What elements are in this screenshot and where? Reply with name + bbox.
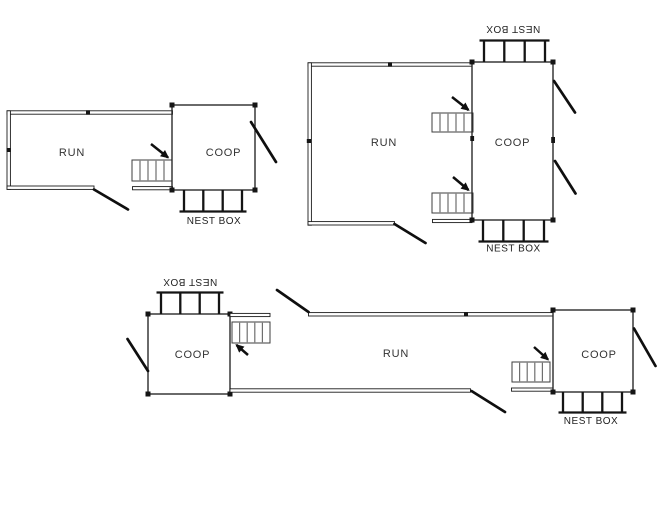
run-fence-bottom-left xyxy=(7,186,94,189)
plan-2-pop-door-arrow-lower xyxy=(453,177,469,190)
run-fence-bottom-left xyxy=(308,222,395,225)
plan-1: RUN COOP NEST BOX xyxy=(7,103,277,228)
plan-3-nest-box-left-label: NEST BOX xyxy=(163,276,217,287)
corner-post xyxy=(253,188,258,193)
plan-2-coop-door-swing-upper xyxy=(554,81,575,113)
plan-3-pop-door-arrow-left xyxy=(237,345,249,355)
plan-1-run-label: RUN xyxy=(59,147,85,159)
run-fence-bottom-left xyxy=(230,389,471,392)
plan-3-nest-box-left xyxy=(157,293,224,315)
fence-post xyxy=(86,110,90,114)
run-fence-top-short xyxy=(230,313,270,316)
plan-2-nest-box-bottom xyxy=(479,220,549,242)
corner-post xyxy=(170,103,175,108)
ramp-frame xyxy=(132,160,172,181)
corner-post xyxy=(551,218,556,223)
floor-plan-svg: RUN COOP NEST BOX xyxy=(0,0,664,531)
corner-post xyxy=(146,392,151,397)
corner-post xyxy=(470,60,475,65)
plan-1-nest-box-label: NEST BOX xyxy=(187,216,241,227)
plan-3-ramp-right xyxy=(512,362,550,382)
fence-post xyxy=(388,62,392,66)
corner-post xyxy=(551,60,556,65)
fence-post xyxy=(7,148,11,152)
plan-1-ramp xyxy=(132,160,172,181)
corner-post xyxy=(253,103,258,108)
fence-post xyxy=(307,139,311,143)
plan-3-pop-door-arrow-right xyxy=(534,347,548,360)
plan-2-run-label: RUN xyxy=(371,137,397,149)
corner-post xyxy=(631,390,636,395)
plan-1-coop-label: COOP xyxy=(206,147,242,159)
plan-1-run-gate-swing xyxy=(94,190,128,210)
plan-2-ramp-lower xyxy=(432,193,473,213)
plan-2-coop-label: COOP xyxy=(495,137,531,149)
plan-3-nest-box-right-label: NEST BOX xyxy=(564,416,618,427)
plan-2: NEST BOX RUN COOP NEST BOX xyxy=(307,23,576,255)
floor-plan-diagram: RUN COOP NEST BOX xyxy=(0,0,664,531)
ramp-frame xyxy=(432,193,473,213)
plan-3-coop-right-door-swing xyxy=(634,329,656,367)
ramp-frame xyxy=(512,362,550,382)
ramp-frame xyxy=(232,322,270,343)
plan-3-nest-box-right xyxy=(559,392,627,413)
plan-3-ramp-left xyxy=(232,322,270,343)
plan-2-nest-box-bottom-label: NEST BOX xyxy=(486,244,540,255)
ramp-frame xyxy=(432,113,473,132)
run-fence-left xyxy=(308,63,311,225)
plan-3-coop-right-label: COOP xyxy=(581,349,617,361)
fence-post xyxy=(464,312,468,316)
plan-2-ramp-upper xyxy=(432,113,473,132)
plan-3-coop-left-label: COOP xyxy=(175,349,211,361)
run-fence-bottom-right xyxy=(433,219,473,222)
run-fence-bottom-right xyxy=(512,388,554,391)
plan-2-pop-door-arrow-upper xyxy=(452,97,469,110)
plan-3-coop-left-door-swing xyxy=(128,339,149,371)
corner-post xyxy=(146,312,151,317)
run-fence-bottom-right xyxy=(133,187,173,190)
corner-post xyxy=(170,188,175,193)
plan-3-run-gate-swing-top xyxy=(277,290,309,312)
plan-3-run-label: RUN xyxy=(383,348,409,360)
plan-3-run-gate-swing-bottom xyxy=(472,391,506,412)
run-fence-top xyxy=(309,313,554,316)
wall-stud xyxy=(551,137,555,143)
plan-2-coop-door-swing-lower xyxy=(555,161,576,194)
wall-stud xyxy=(470,136,474,141)
plan-2-nest-box-top-label: NEST BOX xyxy=(486,23,540,34)
corner-post xyxy=(631,308,636,313)
plan-2-run-gate-swing xyxy=(395,224,426,243)
plan-3: NEST BOX COOP RUN COOP NEST BOX xyxy=(128,276,656,427)
corner-post xyxy=(551,308,556,313)
corner-post xyxy=(551,390,556,395)
plan-2-nest-box-top xyxy=(480,41,550,63)
plan-1-pop-door-arrow xyxy=(151,144,168,158)
plan-1-nest-box xyxy=(180,190,247,212)
corner-post xyxy=(470,218,475,223)
